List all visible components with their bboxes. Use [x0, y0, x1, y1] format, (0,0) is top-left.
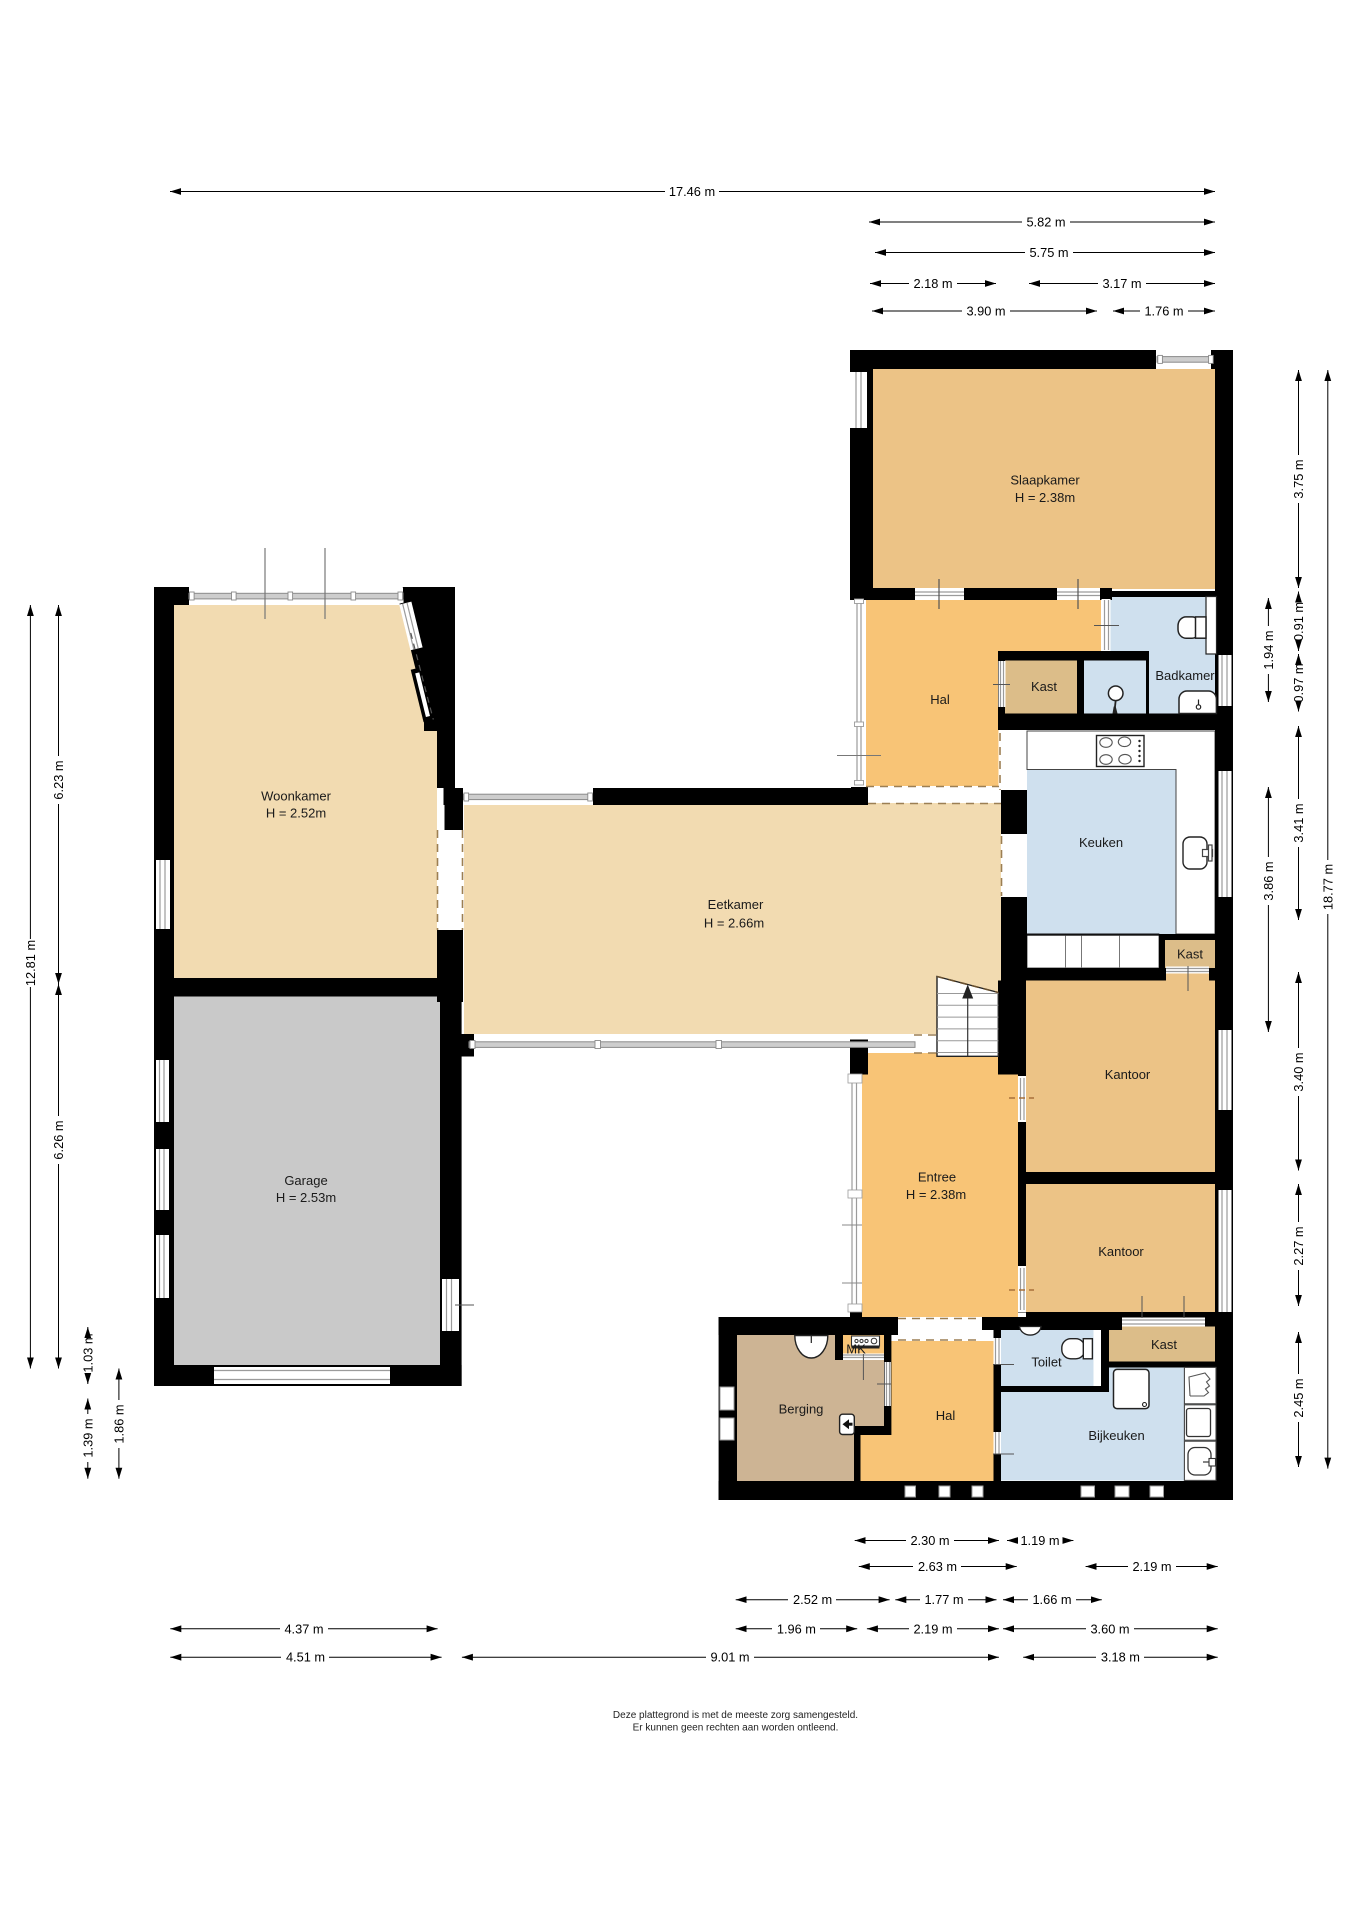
svg-text:12.81 m: 12.81 m	[23, 940, 38, 986]
svg-text:Deze plattegrond is met de mee: Deze plattegrond is met de meeste zorg s…	[613, 1710, 858, 1721]
svg-text:1.86 m: 1.86 m	[111, 1404, 126, 1443]
svg-text:H = 2.52m: H = 2.52m	[266, 806, 326, 821]
svg-text:Badkamer: Badkamer	[1155, 668, 1215, 683]
svg-text:1.19 m: 1.19 m	[1020, 1533, 1059, 1548]
svg-text:Berging: Berging	[779, 1402, 824, 1417]
svg-text:2.52 m: 2.52 m	[793, 1592, 832, 1607]
svg-text:2.27 m: 2.27 m	[1291, 1226, 1306, 1265]
svg-text:1.66 m: 1.66 m	[1032, 1592, 1071, 1607]
svg-text:17.46 m: 17.46 m	[669, 184, 715, 199]
svg-text:2.18 m: 2.18 m	[913, 276, 952, 291]
svg-text:Er kunnen geen rechten aan wor: Er kunnen geen rechten aan worden ontlee…	[633, 1723, 839, 1734]
svg-text:H = 2.38m: H = 2.38m	[1015, 490, 1075, 505]
svg-text:5.75 m: 5.75 m	[1029, 245, 1068, 260]
svg-text:3.86 m: 3.86 m	[1261, 861, 1276, 900]
svg-text:1.76 m: 1.76 m	[1144, 304, 1183, 319]
svg-text:2.63 m: 2.63 m	[918, 1559, 957, 1574]
svg-text:H = 2.66m: H = 2.66m	[704, 916, 764, 931]
svg-text:0.97 m: 0.97 m	[1291, 663, 1306, 702]
svg-text:6.23 m: 6.23 m	[51, 760, 66, 799]
svg-text:1.39 m: 1.39 m	[80, 1418, 95, 1457]
svg-text:Garage: Garage	[284, 1173, 327, 1188]
svg-text:2.19 m: 2.19 m	[913, 1621, 952, 1636]
svg-text:H = 2.38m: H = 2.38m	[906, 1187, 966, 1202]
svg-text:Kast: Kast	[1031, 679, 1057, 694]
svg-text:0.91 m: 0.91 m	[1291, 602, 1306, 641]
svg-text:2.19 m: 2.19 m	[1132, 1559, 1171, 1574]
svg-text:4.51 m: 4.51 m	[286, 1650, 325, 1665]
svg-text:Eetkamer: Eetkamer	[708, 897, 764, 912]
svg-text:3.90 m: 3.90 m	[966, 304, 1005, 319]
svg-text:Kast: Kast	[1177, 947, 1203, 962]
svg-text:3.18 m: 3.18 m	[1101, 1650, 1140, 1665]
svg-text:Hal: Hal	[936, 1408, 956, 1423]
svg-text:1.94 m: 1.94 m	[1261, 630, 1276, 669]
svg-text:MK: MK	[846, 1342, 866, 1357]
svg-text:Slaapkamer: Slaapkamer	[1010, 473, 1080, 488]
svg-text:4.37 m: 4.37 m	[284, 1621, 323, 1636]
svg-text:1.96 m: 1.96 m	[777, 1621, 816, 1636]
svg-text:2.30 m: 2.30 m	[910, 1533, 949, 1548]
svg-text:6.26 m: 6.26 m	[51, 1120, 66, 1159]
svg-text:5.82 m: 5.82 m	[1026, 215, 1065, 230]
svg-text:Kantoor: Kantoor	[1105, 1067, 1151, 1082]
svg-text:Bijkeuken: Bijkeuken	[1088, 1428, 1144, 1443]
svg-text:2.45 m: 2.45 m	[1291, 1378, 1306, 1417]
svg-text:1.77 m: 1.77 m	[924, 1592, 963, 1607]
svg-text:Hal: Hal	[930, 692, 950, 707]
svg-text:1.03 m: 1.03 m	[80, 1333, 95, 1372]
svg-text:Keuken: Keuken	[1079, 835, 1123, 850]
svg-text:Kast: Kast	[1151, 1337, 1177, 1352]
svg-text:3.17 m: 3.17 m	[1102, 276, 1141, 291]
svg-text:Toilet: Toilet	[1031, 1355, 1062, 1370]
svg-text:3.75 m: 3.75 m	[1291, 459, 1306, 498]
svg-text:H = 2.53m: H = 2.53m	[276, 1190, 336, 1205]
svg-text:3.60 m: 3.60 m	[1090, 1621, 1129, 1636]
svg-text:3.40 m: 3.40 m	[1291, 1052, 1306, 1091]
svg-text:Woonkamer: Woonkamer	[261, 789, 332, 804]
svg-text:9.01 m: 9.01 m	[710, 1650, 749, 1665]
svg-text:Kantoor: Kantoor	[1098, 1244, 1144, 1259]
svg-text:Entree: Entree	[918, 1170, 956, 1185]
svg-text:18.77 m: 18.77 m	[1320, 864, 1335, 910]
svg-text:3.41 m: 3.41 m	[1291, 803, 1306, 842]
